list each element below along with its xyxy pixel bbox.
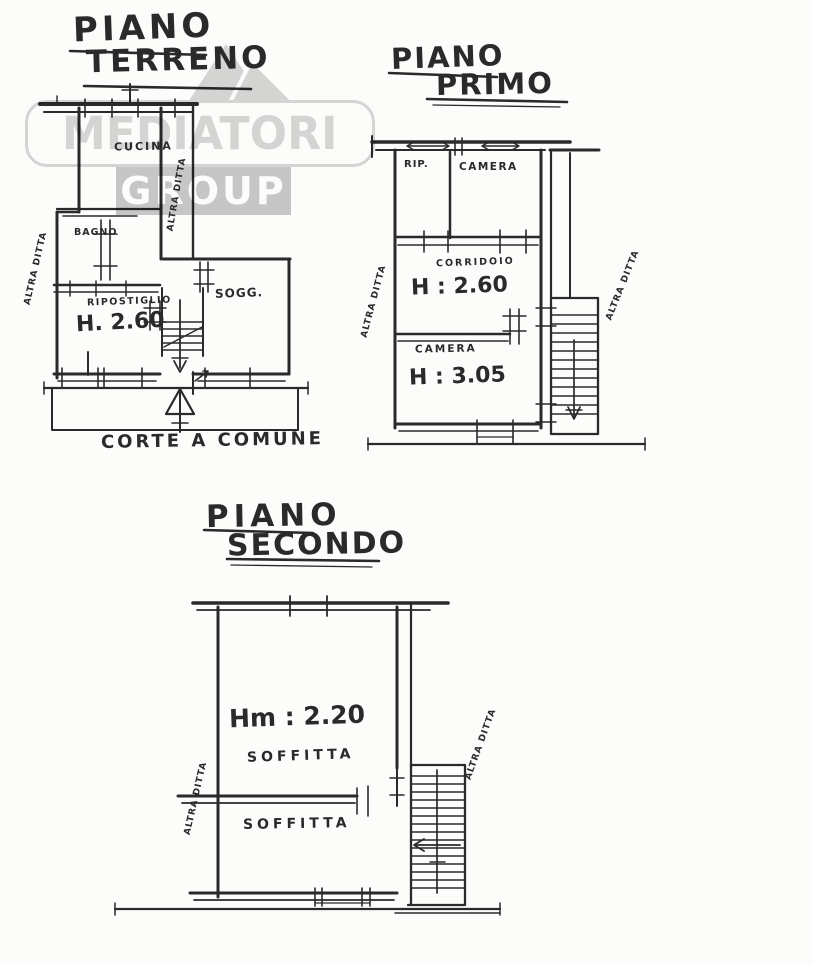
courtyard-label: CORTE A COMUNE bbox=[101, 430, 324, 452]
ground-floor-plan bbox=[40, 51, 308, 432]
room-label-camera-top: CAMERA bbox=[459, 162, 518, 173]
first-ceiling-height-bottom-label: H : 3.05 bbox=[409, 364, 507, 389]
room-label-camera-bottom: CAMERA bbox=[415, 343, 477, 355]
second-floor-title-line2: SECONDO bbox=[227, 528, 407, 561]
scanned-floorplan-document: MEDIATORI GROUP PIANO TERRENO CUCINA BAG… bbox=[0, 0, 813, 964]
room-label-bagno: BAGNO bbox=[74, 228, 117, 238]
second-ceiling-height-label: Hm : 2.20 bbox=[229, 702, 366, 732]
room-label-cucina: CUCINA bbox=[114, 140, 173, 152]
room-label-soggiorno: SOGG. bbox=[215, 286, 263, 300]
ground-floor-title-line2: TERRENO bbox=[86, 43, 271, 79]
room-label-corridoio: CORRIDOIO bbox=[436, 257, 515, 269]
room-label-rip: RIP. bbox=[404, 160, 429, 170]
ground-ceiling-height-label: H. 2.60 bbox=[75, 310, 165, 337]
room-label-soffitta-top: SOFFITTA bbox=[247, 747, 355, 765]
room-label-soffitta-bottom: SOFFITTA bbox=[243, 816, 351, 832]
first-floor-title-line2: PRIMO bbox=[436, 69, 554, 100]
first-ceiling-height-top-label: H : 2.60 bbox=[411, 274, 509, 299]
